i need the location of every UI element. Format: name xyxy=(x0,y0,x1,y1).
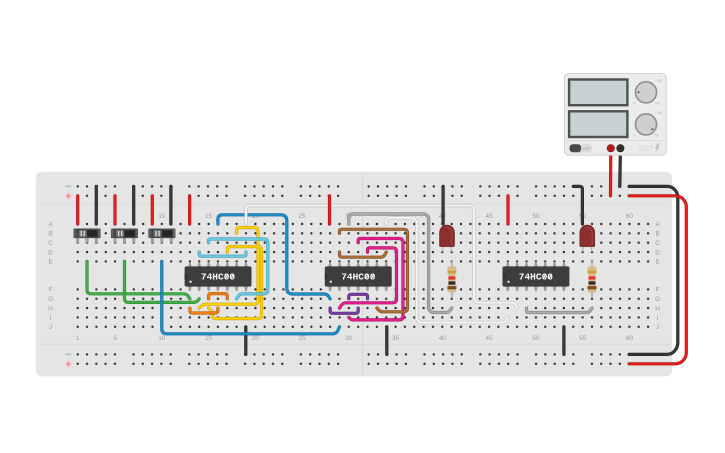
svg-text:G: G xyxy=(48,296,53,303)
svg-text:20: 20 xyxy=(252,335,260,342)
svg-text:25: 25 xyxy=(299,335,307,342)
svg-text:60: 60 xyxy=(626,335,634,342)
svg-text:10: 10 xyxy=(158,335,166,342)
svg-text:C: C xyxy=(655,240,660,247)
svg-text:F: F xyxy=(656,287,660,294)
svg-text:10: 10 xyxy=(158,213,166,220)
svg-text:5: 5 xyxy=(113,335,117,342)
svg-text:A: A xyxy=(655,221,660,228)
svg-text:C: C xyxy=(48,240,53,247)
svg-text:G: G xyxy=(655,296,660,303)
svg-text:15: 15 xyxy=(205,213,213,220)
svg-text:OFF: OFF xyxy=(583,147,591,151)
svg-text:○ 5A: ○ 5A xyxy=(655,111,663,115)
svg-text:0: 0 xyxy=(634,102,636,106)
svg-text:D: D xyxy=(48,249,53,256)
svg-text:I: I xyxy=(50,315,52,322)
svg-text:E: E xyxy=(48,259,52,266)
svg-text:40: 40 xyxy=(439,335,447,342)
svg-text:SUPPLY: SUPPLY xyxy=(639,149,654,153)
svg-text:○ 30: ○ 30 xyxy=(655,79,662,83)
svg-text:30: 30 xyxy=(345,335,353,342)
svg-text:45: 45 xyxy=(486,213,494,220)
svg-text:50: 50 xyxy=(532,335,540,342)
svg-text:74HC00: 74HC00 xyxy=(341,272,376,283)
svg-text:55: 55 xyxy=(579,335,587,342)
svg-text:J: J xyxy=(656,324,659,331)
svg-text:35: 35 xyxy=(392,335,400,342)
svg-text:30V: 30V xyxy=(655,102,662,106)
svg-text:F: F xyxy=(49,287,53,294)
svg-text:15: 15 xyxy=(205,335,213,342)
svg-text:B: B xyxy=(655,231,659,238)
svg-text:74HC00: 74HC00 xyxy=(201,272,236,283)
svg-text:E: E xyxy=(655,259,659,266)
svg-text:5A: 5A xyxy=(655,134,660,138)
svg-text:J: J xyxy=(49,324,52,331)
svg-text:0: 0 xyxy=(634,134,636,138)
svg-text:25: 25 xyxy=(299,213,307,220)
svg-text:B: B xyxy=(48,231,52,238)
svg-text:60: 60 xyxy=(626,213,634,220)
svg-text:74HC00: 74HC00 xyxy=(519,272,554,283)
svg-text:50: 50 xyxy=(532,213,540,220)
svg-text:D: D xyxy=(655,249,660,256)
svg-text:H: H xyxy=(48,305,53,312)
svg-text:A: A xyxy=(48,221,53,228)
svg-text:1: 1 xyxy=(76,335,80,342)
svg-text:45: 45 xyxy=(486,335,494,342)
svg-text:I: I xyxy=(657,315,659,322)
svg-text:H: H xyxy=(655,305,660,312)
